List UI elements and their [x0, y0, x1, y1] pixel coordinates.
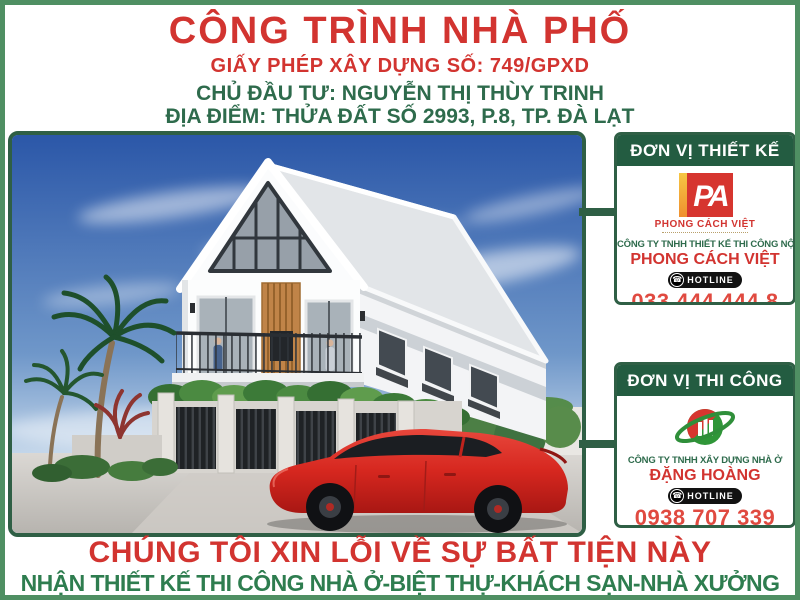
- construction-unit-panel: ĐƠN VỊ THI CÔNG CÔNG TY TNHH XÂY DỰNG NH…: [614, 362, 796, 528]
- construction-panel-header: ĐƠN VỊ THI CÔNG: [617, 365, 793, 396]
- construction-phone-number: 0938 707 339: [617, 505, 793, 528]
- construction-company-name: ĐẶNG HOÀNG: [617, 467, 793, 485]
- balcony-railing: [176, 333, 362, 373]
- phong-cach-viet-logo: PA: [617, 173, 793, 217]
- apology-line: CHÚNG TÔI XIN LỖI VỀ SỰ BẤT TIỆN NÀY: [5, 536, 795, 570]
- design-hotline-badge: ☎ HOTLINE: [668, 272, 742, 288]
- logo-brand-name: PHONG CÁCH VIỆT: [617, 219, 793, 230]
- phone-icon: ☎: [670, 489, 684, 503]
- construction-company-type: CÔNG TY TNHH XÂY DỰNG NHÀ Ở: [617, 455, 793, 466]
- phone-icon: ☎: [670, 273, 684, 287]
- wall-lamp: [360, 311, 365, 321]
- design-panel-header: ĐƠN VỊ THIẾT KẾ: [617, 135, 793, 166]
- design-company-type: CÔNG TY TNHH THIẾT KẾ THI CÔNG NỘI THẤT: [617, 239, 793, 250]
- wall-lamp: [190, 303, 195, 313]
- house-render-photo: [8, 131, 586, 537]
- logo-yellow-stripe: [679, 173, 687, 217]
- connector-line-construction: [579, 440, 619, 448]
- permit-number: GIẤY PHÉP XÂY DỰNG SỐ: 749/GPXD: [5, 55, 795, 78]
- construction-banner: CÔNG TRÌNH NHÀ PHỐ GIẤY PHÉP XÂY DỰNG SỐ…: [0, 0, 800, 600]
- services-line: NHẬN THIẾT KẾ THI CÔNG NHÀ Ở-BIỆT THỰ-KH…: [5, 570, 795, 597]
- design-phone-number: 033 444 444 8: [617, 289, 793, 305]
- location-line: ĐỊA ĐIỂM: THỬA ĐẤT SỐ 2993, P.8, TP. ĐÀ …: [5, 105, 795, 129]
- construction-hotline-badge: ☎ HOTLINE: [668, 488, 742, 504]
- hotline-label: HOTLINE: [687, 275, 734, 285]
- dang-hoang-logo: [617, 402, 793, 452]
- connector-line-design: [579, 208, 619, 216]
- logo-tagline-rule: [662, 232, 748, 236]
- hotline-label: HOTLINE: [687, 491, 734, 501]
- design-unit-panel: ĐƠN VỊ THIẾT KẾ PA PHONG CÁCH VIỆT CÔNG …: [614, 132, 796, 305]
- investor-line: CHỦ ĐẦU TƯ: NGUYỄN THỊ THÙY TRINH: [5, 82, 795, 106]
- pa-monogram: PA: [693, 180, 728, 213]
- banner-title: CÔNG TRÌNH NHÀ PHỐ: [5, 10, 795, 53]
- design-company-name: PHONG CÁCH VIỆT: [617, 251, 793, 269]
